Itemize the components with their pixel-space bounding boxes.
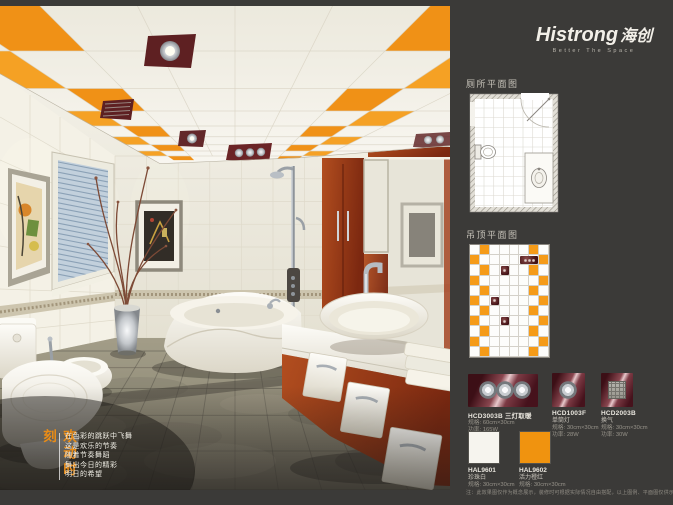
towels (399, 342, 450, 391)
ceiling-tile-white (510, 245, 520, 255)
ceiling-tile-orange (480, 306, 490, 316)
ceiling-tile-white (500, 296, 510, 306)
brand-logo: Histrong海创 Better The Space (520, 22, 668, 54)
toilet-symbol (475, 145, 496, 159)
ceiling-tile-white (480, 296, 490, 306)
swatch-card: HAL9602 活力橙红 规格: 30cm×30cm (519, 431, 579, 489)
swatch-orange (519, 431, 551, 464)
door-opening (521, 93, 549, 100)
product-model: HCD1003F (552, 410, 604, 417)
ceiling-tile-white (510, 337, 520, 347)
ceiling-tile-orange (470, 255, 480, 265)
ceiling-plan-light (501, 266, 509, 274)
ceiling-tile-orange (480, 347, 490, 357)
floor-plan-label: 厕所平面图 (466, 77, 519, 90)
product-card: HCD3003B 三灯取暖 规格: 60cm×30cm 功率: 165W (468, 374, 538, 435)
wall-art-left (8, 168, 50, 287)
ceiling-tile-white (490, 306, 500, 316)
ceiling-tile-orange (470, 296, 480, 306)
ceiling-tile-orange (539, 316, 549, 326)
ceiling-tile-white (510, 326, 520, 336)
vessel-sink (320, 293, 428, 339)
product-image-single-light (552, 373, 585, 407)
ceiling-tile-white (510, 347, 520, 357)
ceiling-tile-white (500, 245, 510, 255)
bathtub (164, 292, 302, 373)
bathroom-photo: 欢动时刻 在色彩的跳跃中飞舞 这是欢乐的节奏 随着节奏舞蹈 舞出今日的精彩 明日… (0, 6, 450, 490)
ceiling-light-large (144, 34, 196, 68)
ceiling-tile-white (490, 276, 500, 286)
product-power: 功率: 30W (601, 432, 653, 439)
ceiling-tile-white (490, 337, 500, 347)
ceiling-tile-white (519, 286, 529, 296)
ceiling-tile-white (539, 306, 549, 316)
ceiling-tile-white (539, 286, 549, 296)
ceiling-tile-white (539, 245, 549, 255)
ceiling-tile-white (510, 306, 520, 316)
ceiling-plan-triple-light (520, 256, 538, 264)
ceiling-tile-orange (529, 265, 539, 275)
ceiling-tile-white (519, 245, 529, 255)
ceiling-tile-orange (539, 255, 549, 265)
ceiling-plan-light (491, 297, 499, 305)
ceiling-tile-white (510, 316, 520, 326)
ceiling-tile-white (519, 306, 529, 316)
ceiling-tile-white (490, 326, 500, 336)
ceiling-tile-white (519, 276, 529, 286)
product-card: HCD2003B 换气 规格: 30cm×30cm 功率: 30W (601, 373, 653, 440)
ceiling-tile-white (490, 316, 500, 326)
ceiling-tile-white (480, 337, 490, 347)
ceiling-tile-white (510, 276, 520, 286)
ceiling-tile-orange (470, 337, 480, 347)
ceiling-tile-orange (529, 286, 539, 296)
ceiling-tile-white (519, 316, 529, 326)
ceiling-tile-white (519, 337, 529, 347)
footnote: 注：此效果图仅作为概念展示，装修时可根据实际情况自由搭配，以上图例、平面图仅供示… (466, 489, 671, 496)
brand-name: Histrong海创 (520, 22, 668, 47)
brand-name-cn: 海创 (620, 28, 652, 45)
ceiling-tile-orange (529, 347, 539, 357)
ceiling-tile-orange (480, 326, 490, 336)
swatch-model: HAL9602 (519, 467, 579, 474)
ceiling-tile-white (490, 265, 500, 275)
ceiling-tile-white (500, 347, 510, 357)
ceiling-tile-white (480, 255, 490, 265)
ceiling-tile-white (480, 316, 490, 326)
ceiling-tile-white (500, 326, 510, 336)
ceiling-tile-white (470, 245, 480, 255)
bathroom-scene (0, 6, 450, 490)
swatch-name: 活力橙红 (519, 474, 579, 482)
ceiling-tile-white (529, 276, 539, 286)
ceiling-plan-light (501, 317, 509, 325)
window (52, 152, 114, 297)
ceiling-tile-white (529, 296, 539, 306)
ceiling-tile-orange (539, 276, 549, 286)
ceiling-tile-white (500, 286, 510, 296)
ceiling-tile-white (539, 326, 549, 336)
ceiling-light-small (178, 130, 206, 147)
product-model: HCD3003B 三灯取暖 (468, 410, 538, 420)
ceiling-tile-white (470, 347, 480, 357)
ceiling-tile-white (519, 296, 529, 306)
swatch-white (468, 431, 500, 464)
ceiling-plan-label: 吊顶平面图 (466, 228, 519, 241)
product-image-triple-light (468, 374, 538, 407)
ceiling-tile-white (490, 255, 500, 265)
product-name: 换气 (601, 417, 653, 425)
ceiling-tile-orange (539, 296, 549, 306)
product-image-vent (601, 373, 633, 407)
brand-tagline: Better The Space (520, 48, 668, 54)
ceiling-tile-white (500, 276, 510, 286)
ceiling-plan-diagram (469, 244, 550, 358)
ceiling-tile-white (490, 245, 500, 255)
ceiling-tile-white (470, 326, 480, 336)
brochure-page: 欢动时刻 在色彩的跳跃中飞舞 这是欢乐的节奏 随着节奏舞蹈 舞出今日的精彩 明日… (0, 0, 673, 505)
ceiling-tile-white (490, 286, 500, 296)
ceiling-tile-orange (480, 245, 490, 255)
ceiling-tile-white (470, 286, 480, 296)
ceiling-tile-orange (480, 265, 490, 275)
product-model: HCD2003B (601, 410, 653, 417)
ceiling-tile-white (470, 306, 480, 316)
ceiling-tile-white (529, 316, 539, 326)
ceiling-tile-white (519, 265, 529, 275)
ceiling-tile-white (519, 326, 529, 336)
ceiling-tile-orange (480, 286, 490, 296)
ceiling-tile-white (510, 265, 520, 275)
ceiling-tile-orange (529, 306, 539, 316)
ceiling-tile-white (500, 337, 510, 347)
ceiling-tile-white (529, 337, 539, 347)
ceiling-tile-white (470, 265, 480, 275)
ceiling-tile-orange (529, 245, 539, 255)
ceiling-tile-white (539, 265, 549, 275)
ceiling-tile-orange (539, 337, 549, 347)
ceiling-tile-orange (529, 326, 539, 336)
product-card: HCD1003F 单筒灯 规格: 30cm×30cm 功率: 28W (552, 373, 604, 440)
ceiling-tile-orange (470, 276, 480, 286)
ceiling-tile-white (490, 347, 500, 357)
floor-plan-diagram (469, 93, 559, 213)
ceiling-tile-white (510, 255, 520, 265)
product-name: 单筒灯 (552, 417, 604, 425)
window-gap (470, 102, 475, 126)
vanity-symbol (525, 153, 553, 203)
ceiling-tile-white (539, 347, 549, 357)
ceiling-tile-white (500, 306, 510, 316)
mirror-art-reflection (402, 204, 442, 266)
ceiling-tile-orange (470, 316, 480, 326)
ceiling-tile-white (510, 286, 520, 296)
ceiling-tile-white (510, 296, 520, 306)
ceiling-vent (100, 99, 134, 120)
ceiling-tile-white (500, 255, 510, 265)
ceiling-tile-white (480, 276, 490, 286)
ceiling-tile-white (519, 347, 529, 357)
